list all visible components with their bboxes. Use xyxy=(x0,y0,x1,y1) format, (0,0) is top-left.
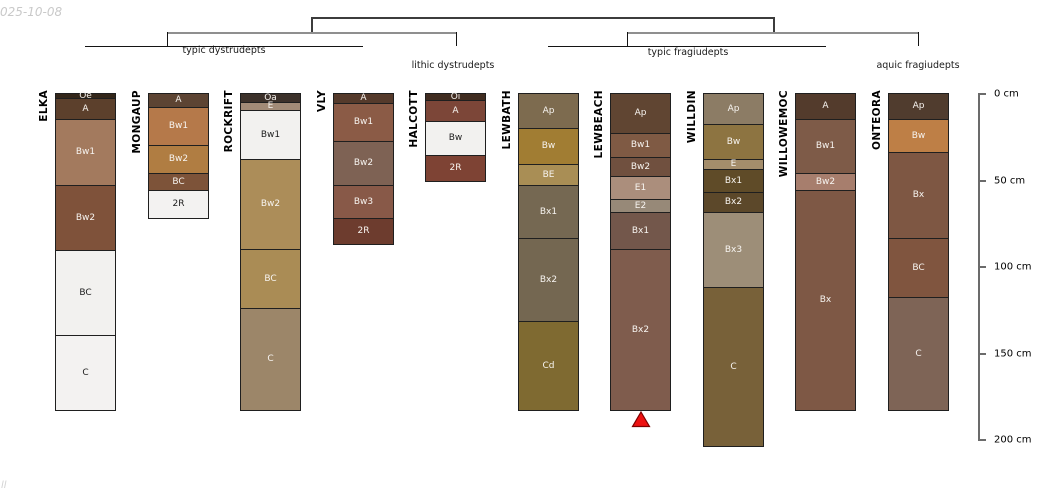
horizon-willowemoc-bw2: Bw2 xyxy=(795,173,856,191)
horizon-halcott-2r: 2R xyxy=(425,155,486,182)
horizon-label: Bx3 xyxy=(725,246,742,255)
series-name-onteora: ONTEORA xyxy=(871,90,883,150)
horizon-label: Bx xyxy=(820,296,832,305)
horizon-lewbeach-bw1: Bw1 xyxy=(610,133,671,158)
horizon-label: Bw xyxy=(727,138,741,147)
horizon-onteora-bw: Bw xyxy=(888,119,949,153)
corner-mark: ll xyxy=(1,480,7,491)
horizon-lewbath-bw: Bw xyxy=(518,128,579,165)
horizon-label: Bx2 xyxy=(540,276,557,285)
horizon-rockrift-c: C xyxy=(240,308,301,411)
horizon-label: Bw1 xyxy=(631,141,650,150)
horizon-label: A xyxy=(82,105,88,114)
horizon-mongaup-2r: 2R xyxy=(148,190,209,219)
horizon-elka-bc: BC xyxy=(55,250,116,336)
horizon-label: Ap xyxy=(728,105,740,114)
horizon-label: Bw2 xyxy=(354,159,373,168)
horizon-elka-bw1: Bw1 xyxy=(55,119,116,186)
horizon-label: Bx1 xyxy=(725,177,742,186)
horizon-label: Bx1 xyxy=(632,227,649,236)
horizon-label: Bw2 xyxy=(816,178,835,187)
horizon-label: BC xyxy=(264,275,276,284)
horizon-vly-bw1: Bw1 xyxy=(333,103,394,142)
series-name-vly: VLY xyxy=(316,90,328,112)
horizon-mongaup-a: A xyxy=(148,93,209,108)
horizon-label: Bx xyxy=(913,191,925,200)
horizon-willdin-bw: Bw xyxy=(703,124,764,160)
horizon-willdin-bx2: Bx2 xyxy=(703,192,764,213)
classification-label: lithic dystrudepts xyxy=(412,60,495,71)
horizon-willdin-ap: Ap xyxy=(703,93,764,125)
horizon-lewbath-bx1: Bx1 xyxy=(518,185,579,239)
horizon-vly-2r: 2R xyxy=(333,218,394,245)
horizon-label: 2R xyxy=(358,227,370,236)
series-name-willdin: WILLDIN xyxy=(686,90,698,143)
horizon-label: C xyxy=(267,355,273,364)
horizon-lewbath-cd: Cd xyxy=(518,321,579,411)
horizon-lewbath-bx2: Bx2 xyxy=(518,238,579,322)
series-name-lewbeach: LEWBEACH xyxy=(593,90,605,158)
series-name-elka: ELKA xyxy=(38,90,50,122)
depth-axis-tick xyxy=(978,353,986,355)
horizon-label: Bw1 xyxy=(354,118,373,127)
horizon-label: E1 xyxy=(635,184,646,193)
horizon-label: E2 xyxy=(635,202,646,211)
horizon-label: BC xyxy=(172,178,184,187)
depth-axis-tick-label: 0 cm xyxy=(994,89,1019,100)
horizon-willowemoc-bw1: Bw1 xyxy=(795,119,856,174)
dendrogram-segment xyxy=(456,32,457,46)
depth-axis-tick-label: 100 cm xyxy=(994,262,1032,273)
classification-label: typic dystrudepts xyxy=(182,45,265,56)
horizon-label: 2R xyxy=(173,200,185,209)
series-name-willowemoc: WILLOWEMOC xyxy=(778,90,790,177)
horizon-willdin-bx1: Bx1 xyxy=(703,169,764,193)
horizon-mongaup-bc: BC xyxy=(148,173,209,191)
horizon-label: Bw1 xyxy=(76,148,95,157)
horizon-mongaup-bw1: Bw1 xyxy=(148,107,209,146)
dendrogram-segment xyxy=(918,32,919,46)
horizon-vly-bw2: Bw2 xyxy=(333,141,394,186)
horizon-onteora-bc: BC xyxy=(888,238,949,298)
dendrogram-segment xyxy=(167,32,456,34)
horizon-willowemoc-bx: Bx xyxy=(795,190,856,411)
horizon-onteora-ap: Ap xyxy=(888,93,949,120)
series-name-lewbath: LEWBATH xyxy=(501,90,513,150)
horizon-label: Cd xyxy=(543,362,555,371)
dendrogram-segment xyxy=(311,17,773,19)
dendrogram-segment xyxy=(627,32,628,46)
horizon-label: Bx2 xyxy=(632,326,649,335)
depth-axis-tick xyxy=(978,180,986,182)
horizon-rockrift-bw1: Bw1 xyxy=(240,110,301,160)
horizon-label: A xyxy=(360,94,366,103)
depth-axis-tick-label: 150 cm xyxy=(994,349,1032,360)
horizon-label: E xyxy=(731,160,737,169)
horizon-label: Bw2 xyxy=(631,163,650,172)
depth-axis-tick xyxy=(978,439,986,441)
horizon-lewbeach-bw2: Bw2 xyxy=(610,157,671,177)
horizon-label: Bx1 xyxy=(540,208,557,217)
horizon-label: 2R xyxy=(450,164,462,173)
date-watermark: 025-10-08 xyxy=(0,5,62,19)
horizon-label: Bw xyxy=(542,142,556,151)
horizon-mongaup-bw2: Bw2 xyxy=(148,145,209,174)
horizon-label: A xyxy=(175,96,181,105)
soil-profile-figure: 025-10-08 ll typic dystrudeptslithic dys… xyxy=(0,0,1050,500)
horizon-halcott-a: A xyxy=(425,100,486,122)
horizon-lewbeach-bx1: Bx1 xyxy=(610,212,671,250)
horizon-label: C xyxy=(82,369,88,378)
depth-axis-tick xyxy=(978,266,986,268)
series-name-mongaup: MONGAUP xyxy=(131,90,143,154)
horizon-willdin-c: C xyxy=(703,287,764,447)
horizon-lewbeach-e1: E1 xyxy=(610,176,671,200)
horizon-lewbeach-e2: E2 xyxy=(610,199,671,213)
horizon-label: Bw1 xyxy=(261,131,280,140)
horizon-label: Bw xyxy=(449,134,463,143)
horizon-label: BC xyxy=(79,289,91,298)
depth-axis-tick xyxy=(978,93,986,95)
horizon-label: A xyxy=(452,107,458,116)
horizon-label: C xyxy=(915,350,921,359)
dendrogram-segment xyxy=(311,17,313,33)
horizon-label: Bw2 xyxy=(76,214,95,223)
horizon-label: Bw2 xyxy=(169,155,188,164)
series-name-halcott: HALCOTT xyxy=(408,90,420,148)
fragipan-triangle-marker xyxy=(630,411,652,432)
horizon-willdin-bx3: Bx3 xyxy=(703,212,764,288)
depth-axis-tick-label: 200 cm xyxy=(994,435,1032,446)
series-name-rockrift: ROCKRIFT xyxy=(223,90,235,152)
dendrogram-segment xyxy=(167,32,168,46)
horizon-onteora-bx: Bx xyxy=(888,152,949,239)
horizon-label: Bw3 xyxy=(354,198,373,207)
horizon-lewbath-ap: Ap xyxy=(518,93,579,129)
horizon-label: Ap xyxy=(913,102,925,111)
horizon-label: BC xyxy=(912,264,924,273)
dendrogram-segment xyxy=(773,17,775,33)
horizon-label: C xyxy=(730,363,736,372)
horizon-onteora-c: C xyxy=(888,297,949,411)
horizon-elka-c: C xyxy=(55,335,116,411)
classification-label: aquic fragiudepts xyxy=(876,60,959,71)
horizon-rockrift-bc: BC xyxy=(240,249,301,309)
horizon-vly-bw3: Bw3 xyxy=(333,185,394,219)
horizon-label: Ap xyxy=(543,107,555,116)
horizon-lewbath-be: BE xyxy=(518,164,579,186)
horizon-label: Ap xyxy=(635,109,647,118)
horizon-label: Bw1 xyxy=(169,122,188,131)
dendrogram-segment xyxy=(627,32,918,34)
horizon-label: Bw xyxy=(912,132,926,141)
horizon-elka-bw2: Bw2 xyxy=(55,185,116,251)
horizon-lewbeach-ap: Ap xyxy=(610,93,671,134)
depth-axis-tick-label: 50 cm xyxy=(994,176,1025,187)
horizon-label: A xyxy=(822,102,828,111)
horizon-label: Bw1 xyxy=(816,142,835,151)
horizon-label: Bw2 xyxy=(261,200,280,209)
horizon-rockrift-bw2: Bw2 xyxy=(240,159,301,250)
horizon-label: Bx2 xyxy=(725,198,742,207)
horizon-elka-a: A xyxy=(55,98,116,120)
horizon-halcott-bw: Bw xyxy=(425,121,486,156)
horizon-lewbeach-bx2: Bx2 xyxy=(610,249,671,411)
horizon-label: BE xyxy=(543,171,555,180)
classification-label: typic fragiudepts xyxy=(648,47,729,58)
horizon-willowemoc-a: A xyxy=(795,93,856,120)
